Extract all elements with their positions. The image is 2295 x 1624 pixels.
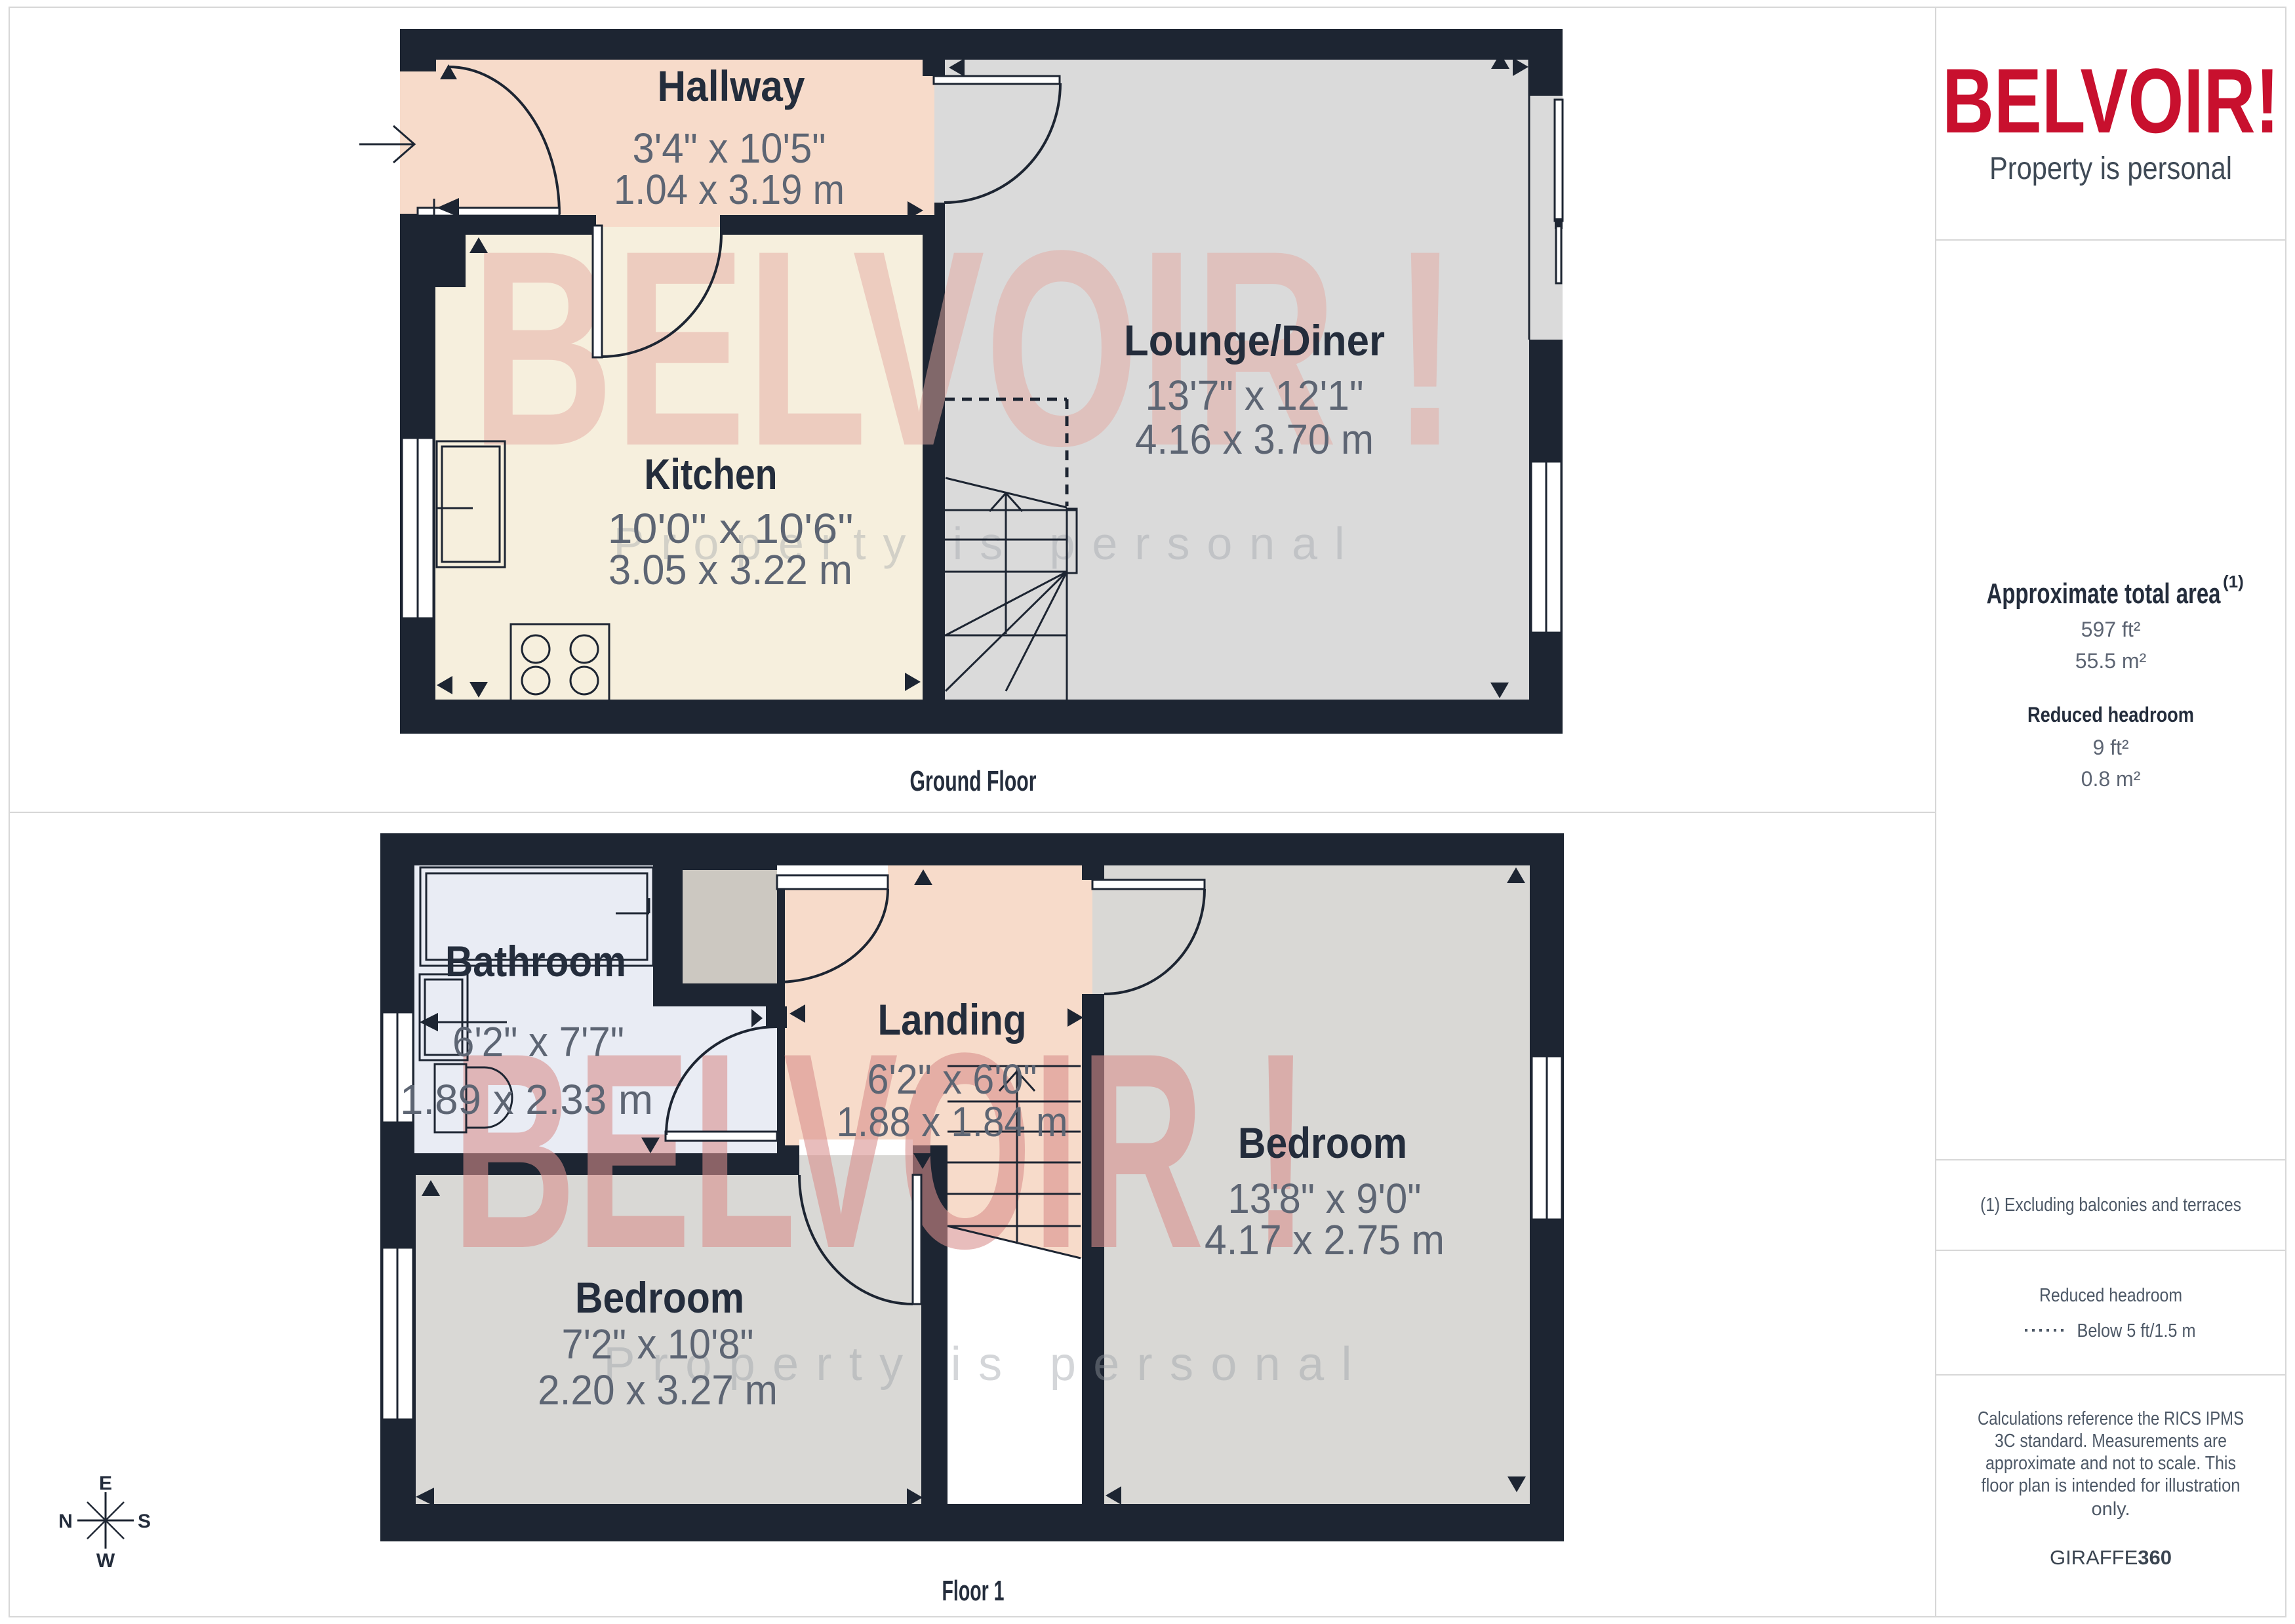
svg-text:Bathroom: Bathroom (445, 937, 626, 985)
svg-text:Ground Floor: Ground Floor (910, 765, 1037, 797)
svg-text:Floor 1: Floor 1 (942, 1575, 1005, 1607)
svg-text:1.88 x 1.84 m: 1.88 x 1.84 m (837, 1098, 1068, 1145)
svg-text:N: N (58, 1511, 73, 1532)
svg-text:Kitchen: Kitchen (645, 450, 778, 498)
svg-text:10'0" x 10'6": 10'0" x 10'6" (608, 505, 854, 552)
svg-text:Landing: Landing (878, 995, 1027, 1044)
svg-text:(1): (1) (2223, 572, 2244, 591)
svg-text:(1) Excluding balconies and te: (1) Excluding balconies and terraces (1980, 1195, 2241, 1216)
svg-text:Bedroom: Bedroom (1238, 1119, 1407, 1167)
svg-text:6'2" x 7'7": 6'2" x 7'7" (452, 1018, 624, 1065)
svg-text:2.20 x 3.27 m: 2.20 x 3.27 m (538, 1366, 778, 1414)
svg-text:0.8 m²: 0.8 m² (2081, 767, 2141, 791)
svg-text:floor plan is intended for ill: floor plan is intended for illustration (1982, 1475, 2241, 1496)
svg-text:only.: only. (2091, 1499, 2130, 1520)
svg-text:Reduced headroom: Reduced headroom (2039, 1285, 2182, 1306)
svg-text:7'2" x 10'8": 7'2" x 10'8" (562, 1320, 754, 1368)
svg-text:55.5 m²: 55.5 m² (2075, 649, 2147, 673)
svg-text:9 ft²: 9 ft² (2092, 736, 2128, 759)
svg-text:3'4" x 10'5": 3'4" x 10'5" (633, 125, 826, 172)
svg-text:Calculations reference the RIC: Calculations reference the RICS IPMS (1978, 1408, 2244, 1429)
svg-text:Lounge/Diner: Lounge/Diner (1124, 316, 1385, 365)
svg-text:4.16 x 3.70 m: 4.16 x 3.70 m (1135, 416, 1374, 463)
svg-text:1.04 x 3.19 m: 1.04 x 3.19 m (614, 166, 845, 213)
svg-text:4.17 x 2.75 m: 4.17 x 2.75 m (1205, 1216, 1445, 1263)
svg-text:Reduced headroom: Reduced headroom (2027, 703, 2194, 726)
svg-text:13'7" x 12'1": 13'7" x 12'1" (1146, 372, 1364, 419)
svg-text:3C standard. Measurements are: 3C standard. Measurements are (1995, 1431, 2227, 1452)
svg-text:Below 5 ft/1.5 m: Below 5 ft/1.5 m (2077, 1320, 2196, 1341)
svg-text:6'2" x 6'0": 6'2" x 6'0" (868, 1056, 1037, 1103)
svg-text:3.05 x 3.22 m: 3.05 x 3.22 m (609, 546, 852, 593)
svg-text:Property is personal: Property is personal (1989, 151, 2232, 186)
svg-text:GIRAFFE360: GIRAFFE360 (2050, 1546, 2172, 1569)
svg-text:E: E (99, 1473, 112, 1494)
svg-text:597 ft²: 597 ft² (2081, 618, 2141, 641)
svg-text:BELVOIR!: BELVOIR! (1942, 49, 2279, 152)
svg-text:Bedroom: Bedroom (575, 1273, 744, 1322)
svg-text:1.89 x 2.33 m: 1.89 x 2.33 m (400, 1076, 653, 1123)
svg-text:S: S (138, 1511, 151, 1532)
svg-text:Hallway: Hallway (658, 62, 805, 110)
svg-text:Approximate total area: Approximate total area (1987, 578, 2221, 610)
svg-text:W: W (96, 1550, 115, 1572)
svg-text:13'8" x 9'0": 13'8" x 9'0" (1228, 1175, 1422, 1222)
svg-text:approximate and not to scale.: approximate and not to scale. This (1986, 1453, 2236, 1474)
